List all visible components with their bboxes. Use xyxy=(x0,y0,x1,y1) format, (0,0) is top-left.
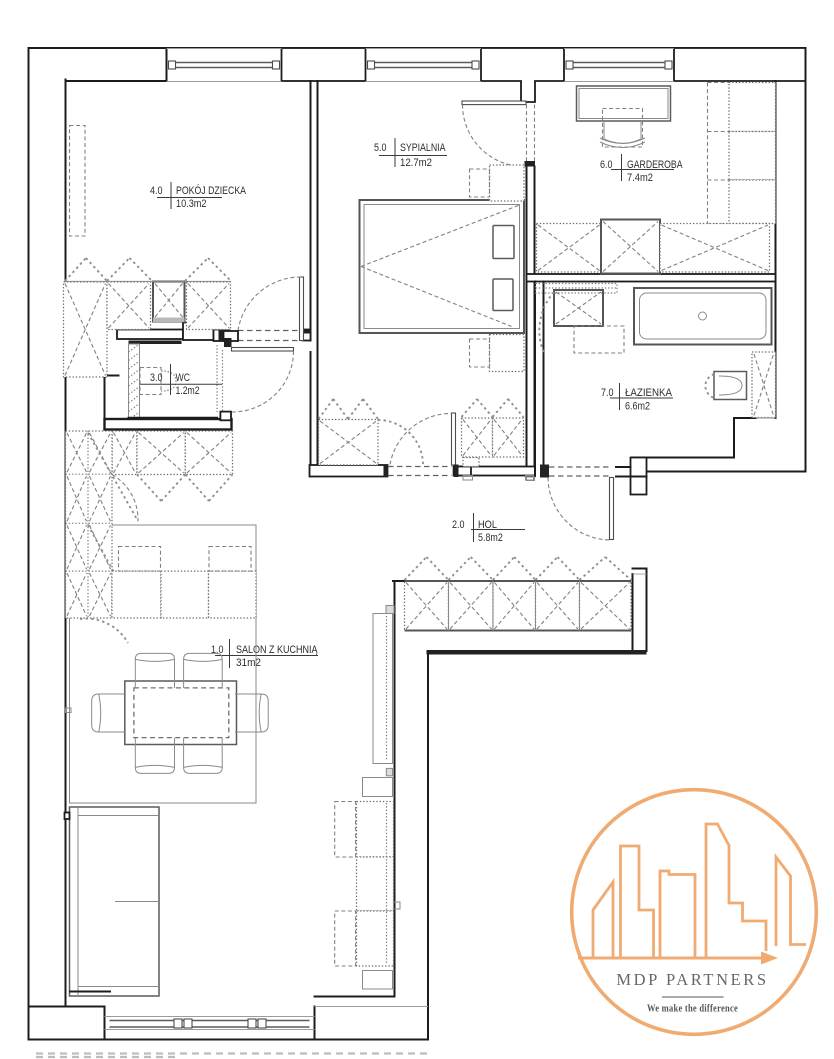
svg-text:SALON Z KUCHNIĄ: SALON Z KUCHNIĄ xyxy=(236,644,318,656)
svg-text:MDP PARTNERS: MDP PARTNERS xyxy=(616,970,768,989)
svg-text:31m2: 31m2 xyxy=(236,657,261,669)
svg-text:2.0: 2.0 xyxy=(452,519,465,531)
svg-text:3.0: 3.0 xyxy=(150,372,163,384)
svg-text:6.6m2: 6.6m2 xyxy=(625,401,650,413)
svg-text:5.8m2: 5.8m2 xyxy=(478,532,503,544)
svg-text:6.0: 6.0 xyxy=(600,159,613,171)
svg-text:SYPIALNIA: SYPIALNIA xyxy=(400,142,446,154)
svg-text:12.7m2: 12.7m2 xyxy=(400,157,432,169)
svg-text:4.0: 4.0 xyxy=(150,185,163,197)
svg-text:POKÓJ DZIECKA: POKÓJ DZIECKA xyxy=(176,184,247,197)
svg-text:7.4m2: 7.4m2 xyxy=(627,172,653,184)
svg-text:1.2m2: 1.2m2 xyxy=(176,385,200,397)
svg-text:WC: WC xyxy=(176,372,191,384)
svg-text:5.0: 5.0 xyxy=(374,142,387,154)
svg-text:7.0: 7.0 xyxy=(601,387,614,399)
svg-text:ŁAZIENKA: ŁAZIENKA xyxy=(625,387,673,399)
svg-text:We make the difference: We make the difference xyxy=(647,1004,738,1015)
svg-text:10.3m2: 10.3m2 xyxy=(176,198,207,210)
svg-text:1.0: 1.0 xyxy=(211,644,224,656)
